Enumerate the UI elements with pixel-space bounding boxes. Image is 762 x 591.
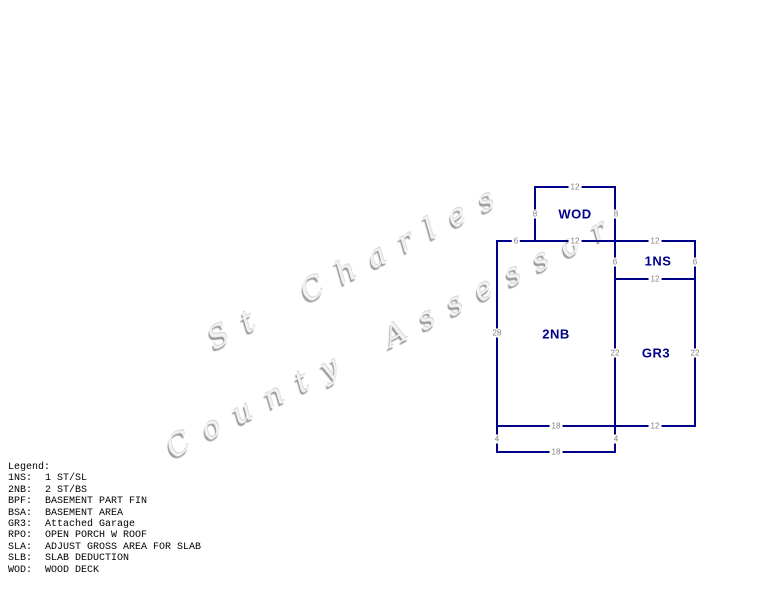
legend-code: SLB:	[8, 553, 45, 564]
wall-main-left	[496, 240, 498, 453]
dim-wod-right: 8	[612, 210, 620, 219]
legend-row: BSA:BASEMENT AREA	[8, 508, 201, 519]
legend-desc: OPEN PORCH W ROOF	[45, 530, 147, 541]
watermark: St Charles County Assessor	[29, 73, 724, 530]
legend-code: RPO:	[8, 530, 45, 541]
legend-row: WOD:WOOD DECK	[8, 565, 201, 576]
wall-interior	[614, 186, 616, 453]
legend-desc: SLAB DEDUCTION	[45, 553, 129, 564]
dim-gr-right: 22	[689, 349, 702, 358]
dim-nb-bottom: 18	[550, 422, 563, 431]
legend-desc: BASEMENT PART FIN	[45, 496, 147, 507]
legend-code: 2NB:	[8, 485, 45, 496]
dim-top-seg: 6	[512, 237, 520, 246]
legend-row: 2NB:2 ST/BS	[8, 485, 201, 496]
legend-code: BSA:	[8, 508, 45, 519]
dim-ns-top: 12	[649, 237, 662, 246]
legend-row: SLA:ADJUST GROSS AREA FOR SLAB	[8, 542, 201, 553]
legend-row: BPF:BASEMENT PART FIN	[8, 496, 201, 507]
area-label-wod: WOD	[558, 207, 591, 222]
legend-code: SLA:	[8, 542, 45, 553]
dim-wod-top: 12	[569, 183, 582, 192]
dim-ext-bottom: 18	[550, 448, 563, 457]
dim-gr-bottom: 12	[649, 422, 662, 431]
assessor-sketch-page: St Charles County Assessor 12 8 8 6 12 1…	[0, 0, 762, 591]
area-label-gr3: GR3	[642, 346, 670, 361]
legend-row: SLB:SLAB DEDUCTION	[8, 553, 201, 564]
dim-gr-left: 22	[609, 349, 622, 358]
wall-main-top	[496, 240, 696, 242]
dim-ext-left: 4	[493, 435, 501, 444]
legend-desc: BASEMENT AREA	[45, 508, 123, 519]
legend-desc: 2 ST/BS	[45, 485, 87, 496]
legend-desc: 1 ST/SL	[45, 473, 87, 484]
area-label-2nb: 2NB	[542, 327, 570, 342]
legend-desc: WOOD DECK	[45, 565, 99, 576]
legend-code: WOD:	[8, 565, 45, 576]
dim-ns-bottom: 12	[649, 275, 662, 284]
legend-title: Legend:	[8, 462, 201, 473]
legend-row: RPO:OPEN PORCH W ROOF	[8, 530, 201, 541]
legend-row: GR3:Attached Garage	[8, 519, 201, 530]
area-label-1ns: 1NS	[645, 254, 672, 269]
dim-ext-right: 4	[612, 435, 620, 444]
legend-desc: Attached Garage	[45, 519, 135, 530]
wall-main-right	[694, 240, 696, 427]
dim-nb-left: 28	[491, 329, 504, 338]
legend-code: GR3:	[8, 519, 45, 530]
dim-ns-left: 6	[611, 258, 619, 267]
legend-code: 1NS:	[8, 473, 45, 484]
legend-desc: ADJUST GROSS AREA FOR SLAB	[45, 542, 201, 553]
legend-code: BPF:	[8, 496, 45, 507]
dim-wod-left: 8	[531, 210, 539, 219]
dim-ns-right: 6	[691, 258, 699, 267]
wall-main-bottom	[496, 425, 696, 427]
dim-wod-bottom: 12	[569, 237, 582, 246]
legend: Legend: 1NS:1 ST/SL 2NB:2 ST/BS BPF:BASE…	[8, 462, 201, 576]
watermark-line1: St Charles	[29, 73, 688, 460]
legend-row: 1NS:1 ST/SL	[8, 473, 201, 484]
